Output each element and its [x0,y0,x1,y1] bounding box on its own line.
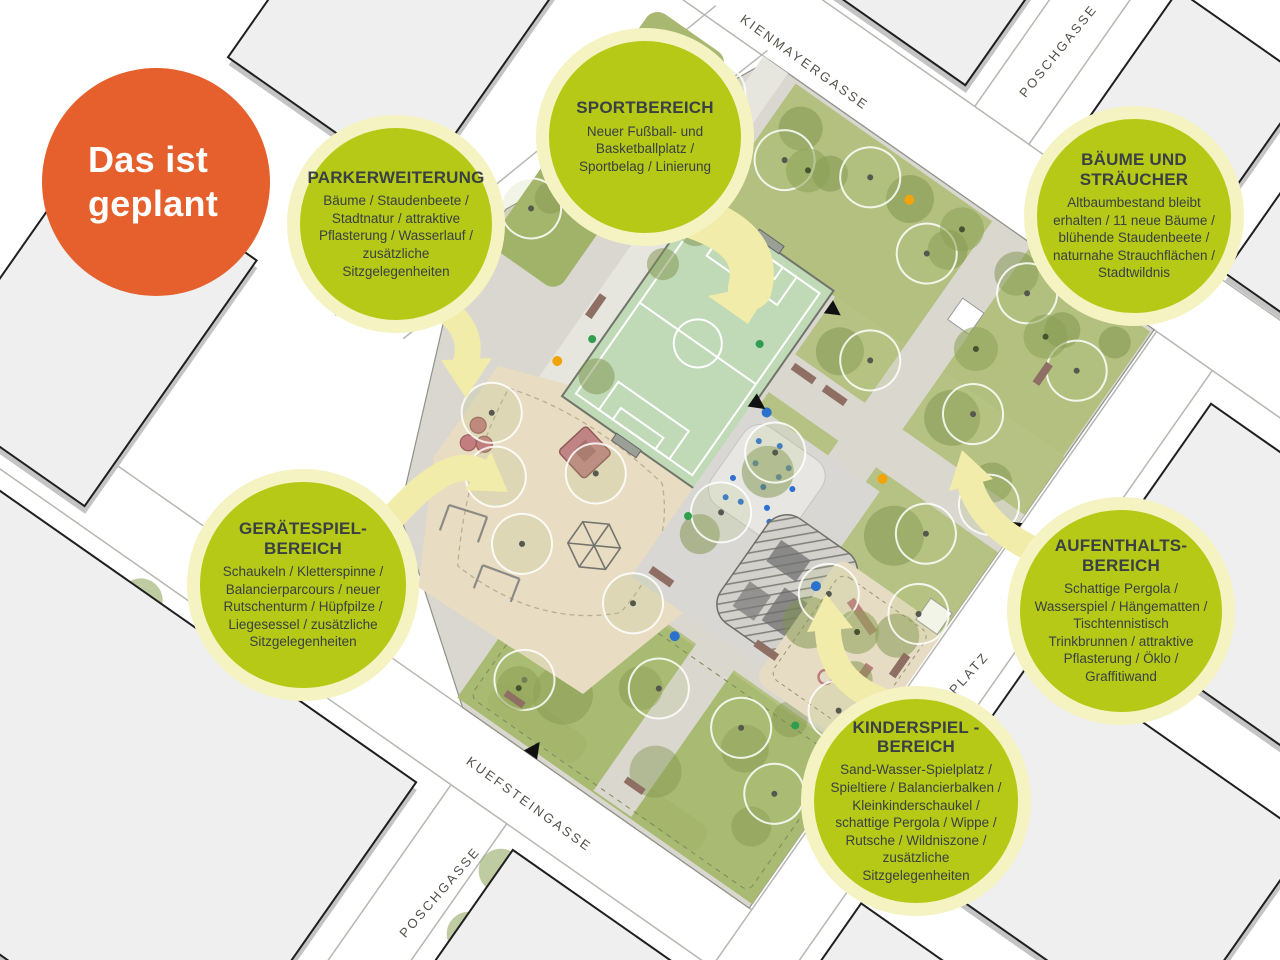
park-plan-infographic: KIENMAYERGASSE POSCHGASSE TZPLATZ KUEFST… [0,0,1280,960]
bubble-description: Altbaumbestand bleibt erhalten / 11 neue… [1051,194,1217,282]
intro-line-1: Das ist [88,138,270,182]
bubble-description: Sand-Wasser-Spielplatz / Spieltiere / Ba… [828,761,1004,884]
bubble-title: KINDERSPIEL -BEREICH [828,718,1004,757]
bubble-kinderspielbereich: KINDERSPIEL -BEREICH Sand-Wasser-Spielpl… [801,686,1031,916]
bubble-baeume-und-straeucher: BÄUME UND STRÄUCHER Altbaumbestand bleib… [1024,106,1244,326]
bubble-title: AUFENTHALTS-BEREICH [1034,536,1208,575]
bubble-title: SPORTBEREICH [576,98,713,117]
bubble-sportbereich: SPORTBEREICH Neuer Fußball- und Basketba… [536,28,754,246]
intro-bubble: Das ist geplant [42,68,270,296]
bubble-geraetespielbereich: GERÄTESPIEL-BEREICH Schaukeln / Kletters… [187,469,419,701]
bubble-description: Schaukeln / Kletterspinne / Balancierpar… [214,563,392,651]
bubble-aufenthaltsbereich: AUFENTHALTS-BEREICH Schattige Pergola / … [1007,497,1235,725]
bubble-title: GERÄTESPIEL-BEREICH [214,519,392,558]
bubble-description: Schattige Pergola / Wasserspiel / Hängem… [1034,580,1208,685]
bubble-description: Bäume / Staudenbeete / Stadtnatur / attr… [314,192,478,280]
bubble-title: PARKERWEITERUNG [307,168,484,187]
bubble-description: Neuer Fußball- und Basketballplatz / Spo… [563,123,727,176]
bubble-title: BÄUME UND STRÄUCHER [1051,150,1217,189]
intro-line-2: geplant [88,182,270,226]
bubble-parkerweiterung: PARKERWEITERUNG Bäume / Staudenbeete / S… [287,115,505,333]
